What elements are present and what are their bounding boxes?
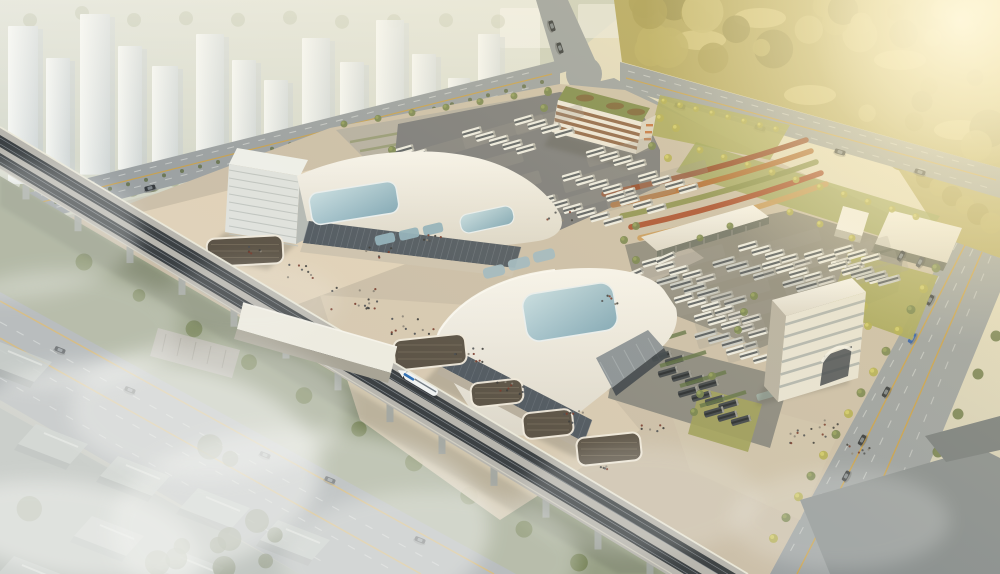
rendering-canvas <box>0 0 1000 574</box>
atmosphere-fog-glow <box>0 0 1000 574</box>
aerial-rendering-transit-hub <box>0 0 1000 574</box>
